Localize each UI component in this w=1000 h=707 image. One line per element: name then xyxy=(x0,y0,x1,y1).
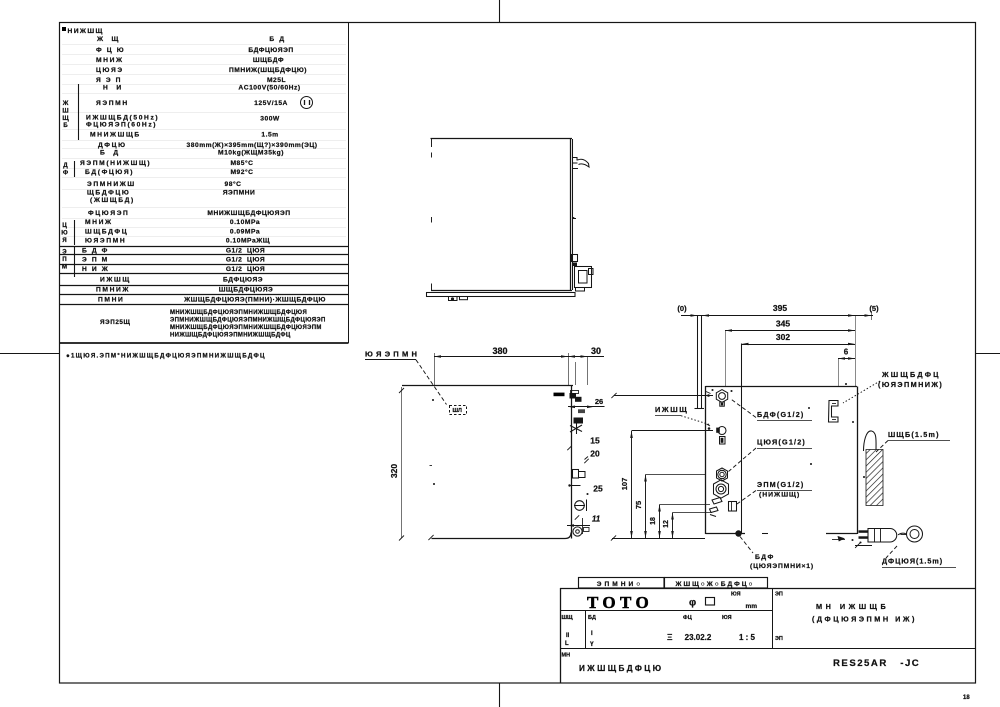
svg-text:ЮЯЭПМН: ЮЯЭПМН xyxy=(365,350,420,359)
svg-text:Б: Б xyxy=(63,122,68,129)
svg-text:Н И Ж: Н И Ж xyxy=(82,266,109,273)
svg-text:Д: Д xyxy=(63,162,68,169)
svg-text:25: 25 xyxy=(593,484,603,494)
svg-text:ПМНИ: ПМНИ xyxy=(98,297,124,304)
svg-text:ЯЭПМ(НИЖШЩ): ЯЭПМ(НИЖШЩ) xyxy=(80,160,151,167)
svg-text:380: 380 xyxy=(492,346,507,356)
svg-text:11: 11 xyxy=(592,515,601,524)
svg-text:Ш: Ш xyxy=(62,107,68,114)
svg-text:Ф Ц Ю: Ф Ц Ю xyxy=(96,47,125,54)
svg-text:ПМНИЖ: ПМНИЖ xyxy=(96,287,130,294)
svg-text:ФЦЮЯЭП: ФЦЮЯЭП xyxy=(88,210,129,217)
svg-text:ШЛ: ШЛ xyxy=(453,408,463,414)
svg-text:Э П М: Э П М xyxy=(82,257,109,264)
svg-text:mm: mm xyxy=(746,603,758,610)
svg-text:ЮЯЭПМН: ЮЯЭПМН xyxy=(85,238,126,245)
svg-text:Н И: Н И xyxy=(103,85,123,92)
svg-text:МНИЖ: МНИЖ xyxy=(96,57,124,64)
svg-text:26: 26 xyxy=(595,397,603,406)
svg-text:БДФЦЮЯЭП: БДФЦЮЯЭП xyxy=(248,47,293,54)
svg-text:RES25AR -JC: RES25AR -JC xyxy=(833,658,920,669)
svg-text:БД(ФЦЮЯ): БД(ФЦЮЯ) xyxy=(85,169,134,176)
svg-text:15: 15 xyxy=(590,436,600,446)
svg-text:П: П xyxy=(62,256,67,263)
svg-text:Я: Я xyxy=(62,237,67,244)
svg-text:0.10MPa: 0.10MPa xyxy=(230,219,260,226)
svg-text:ЭПМ(G1/2): ЭПМ(G1/2) xyxy=(757,480,804,489)
svg-text:М: М xyxy=(62,264,67,271)
svg-text:ДФЦЮЯ(1.5m): ДФЦЮЯ(1.5m) xyxy=(882,557,943,566)
svg-text:Ц: Ц xyxy=(62,222,67,229)
svg-text:G1/2 ЦЮЯ: G1/2 ЦЮЯ xyxy=(226,266,265,273)
svg-text:МНИЖШЩБ: МНИЖШЩБ xyxy=(90,132,141,139)
svg-text:φ: φ xyxy=(689,598,696,609)
svg-text:107: 107 xyxy=(620,478,629,491)
svg-text:ШЩБДФЦ: ШЩБДФЦ xyxy=(85,229,128,236)
svg-text:Б Д: Б Д xyxy=(100,150,120,157)
svg-text:ПМНИЖ(ШЩБДФЦЮ): ПМНИЖ(ШЩБДФЦЮ) xyxy=(229,67,307,74)
svg-text:AC100V(50/60Hz): AC100V(50/60Hz) xyxy=(238,85,300,92)
svg-text:302: 302 xyxy=(776,332,790,342)
svg-text:НИЖШЩБДФЦЮЯЭПМНИЖШЩБДФЦ: НИЖШЩБДФЦЮЯЭПМНИЖШЩБДФЦ xyxy=(170,332,291,338)
svg-text:ЮЯ: ЮЯ xyxy=(731,592,741,598)
svg-text:Щ: Щ xyxy=(62,115,69,122)
svg-text:ШЩ: ШЩ xyxy=(562,615,574,621)
svg-text:G1/2 ЦЮЯ: G1/2 ЦЮЯ xyxy=(226,257,265,264)
svg-text:(НИЖШЩ): (НИЖШЩ) xyxy=(759,492,800,499)
svg-text:380mm(Ж)×395mm(Щ?)×390mm(ЭЦ): 380mm(Ж)×395mm(Щ?)×390mm(ЭЦ) xyxy=(187,142,318,149)
svg-text:0.09MPa: 0.09MPa xyxy=(230,229,260,236)
svg-text:6: 6 xyxy=(844,348,849,357)
svg-text:ЮЯ: ЮЯ xyxy=(722,615,732,621)
svg-text:ЖШЩБДФЦ: ЖШЩБДФЦ xyxy=(881,370,941,379)
svg-text:МНИЖШЩБДФЦЮЯЭПМНИЖШЩБДФЦЮЯЭПМ: МНИЖШЩБДФЦЮЯЭПМНИЖШЩБДФЦЮЯЭПМ xyxy=(170,325,322,331)
svg-text:БДФЦЮЯЭ: БДФЦЮЯЭ xyxy=(223,277,263,284)
svg-text:18: 18 xyxy=(963,695,970,701)
svg-text:М85°C: М85°C xyxy=(230,159,253,167)
svg-text:Ф: Ф xyxy=(63,170,69,177)
svg-text:БД: БД xyxy=(588,615,596,621)
svg-text:(ДФЦЮЯЭПМН ИЖ): (ДФЦЮЯЭПМН ИЖ) xyxy=(812,615,917,624)
svg-text:75: 75 xyxy=(634,501,643,509)
svg-text:20: 20 xyxy=(590,449,600,459)
svg-text:0.10MPaЖЩ: 0.10MPaЖЩ xyxy=(226,238,270,245)
svg-text:ШЩБ(1.5m): ШЩБ(1.5m) xyxy=(888,430,940,439)
svg-text:ЭПМНИЖШЩБДФЦЮЯЭПМНИЖШЩБДФЦЮЯЭП: ЭПМНИЖШЩБДФЦЮЯЭПМНИЖШЩБДФЦЮЯЭП xyxy=(170,317,326,323)
svg-text:Э: Э xyxy=(62,249,67,256)
svg-text:ШЩБДФЦЮЯЭ: ШЩБДФЦЮЯЭ xyxy=(219,287,274,294)
svg-text:345: 345 xyxy=(776,319,790,329)
svg-text:Б Д: Б Д xyxy=(269,36,284,43)
svg-text:М25L: М25L xyxy=(267,77,286,84)
svg-text:ЯЭП25Щ: ЯЭП25Щ xyxy=(100,319,131,326)
svg-text:МН ИЖШЩБ: МН ИЖШЩБ xyxy=(816,602,889,611)
svg-text:ЯЭПМН: ЯЭПМН xyxy=(96,100,129,107)
svg-text:ИЖШЩБД(50Hz): ИЖШЩБД(50Hz) xyxy=(86,115,159,122)
svg-text:G1/2 ЦЮЯ: G1/2 ЦЮЯ xyxy=(226,248,265,255)
svg-text:М10kg(ЖЩМ35kg): М10kg(ЖЩМ35kg) xyxy=(218,150,284,157)
svg-text:320: 320 xyxy=(389,464,399,478)
svg-text:ШЩБДФ: ШЩБДФ xyxy=(253,57,284,64)
svg-text:БДФ(G1/2): БДФ(G1/2) xyxy=(757,410,805,419)
svg-text:ЯЭПМНИ: ЯЭПМНИ xyxy=(223,190,256,197)
svg-text:ИЖШЩ: ИЖШЩ xyxy=(100,277,131,284)
svg-text:М92°C: М92°C xyxy=(230,168,253,176)
svg-text:ЖШЩБДФЦЮЯЭ(ПМНИ)·ЖШЩБДФЦЮ: ЖШЩБДФЦЮЯЭ(ПМНИ)·ЖШЩБДФЦЮ xyxy=(183,297,326,304)
svg-text:98°C: 98°C xyxy=(225,180,242,188)
svg-text:(ЖШЩБД): (ЖШЩБД) xyxy=(90,197,135,204)
svg-text:23.02.2: 23.02.2 xyxy=(685,633,712,642)
svg-text:БДФ: БДФ xyxy=(755,554,775,561)
svg-text:ИЖШЩБДФЦЮ: ИЖШЩБДФЦЮ xyxy=(579,664,663,673)
svg-text:Ж Щ: Ж Щ xyxy=(96,36,120,43)
svg-text:ИЖШЩ: ИЖШЩ xyxy=(655,405,688,414)
svg-text:125V/15A: 125V/15A xyxy=(254,100,288,107)
svg-text:ЩБДФЦЮ: ЩБДФЦЮ xyxy=(87,190,130,197)
svg-text:1 : 5: 1 : 5 xyxy=(739,633,756,642)
svg-text:12: 12 xyxy=(663,520,670,528)
svg-text:Я Э П: Я Э П xyxy=(96,77,122,84)
svg-text:18: 18 xyxy=(650,517,657,525)
svg-text:(5): (5) xyxy=(869,304,879,313)
svg-text:МН: МН xyxy=(562,653,571,659)
svg-text:(ЦЮЯЭПМНИ×1): (ЦЮЯЭПМНИ×1) xyxy=(750,563,814,570)
svg-text:395: 395 xyxy=(773,303,787,313)
svg-text:●1ЩЮЯ.ЭПМ°НИЖШЩБДФЦЮЯЭПМНИЖШЩБ: ●1ЩЮЯ.ЭПМ°НИЖШЩБДФЦЮЯЭПМНИЖШЩБДФЦ xyxy=(66,353,266,360)
svg-text:МНИЖШЩБДФЦЮЯЭП: МНИЖШЩБДФЦЮЯЭП xyxy=(207,210,290,217)
svg-text:TOTO: TOTO xyxy=(587,593,653,612)
svg-text:І: І xyxy=(591,631,593,637)
svg-text:Ю: Ю xyxy=(61,230,68,237)
svg-text:300W: 300W xyxy=(260,116,280,123)
svg-text:ФЦ: ФЦ xyxy=(683,615,692,621)
svg-text:МНИЖ: МНИЖ xyxy=(85,219,113,226)
svg-text:ЦЮЯЭ: ЦЮЯЭ xyxy=(96,67,124,74)
svg-text:(ЮЯЭПМНИЖ): (ЮЯЭПМНИЖ) xyxy=(878,380,943,389)
svg-text:ЖШЩ○Ж○БДФЦ○: ЖШЩ○Ж○БДФЦ○ xyxy=(674,581,754,588)
svg-text:Ү: Ү xyxy=(590,641,594,648)
svg-text:Ж: Ж xyxy=(62,100,69,107)
svg-text:ЭПМНИЖШ: ЭПМНИЖШ xyxy=(87,181,136,188)
svg-text:(0): (0) xyxy=(677,304,687,313)
svg-text:II: II xyxy=(566,633,570,639)
svg-text:ЦЮЯ(G1/2): ЦЮЯ(G1/2) xyxy=(757,438,806,447)
svg-text:1.5m: 1.5m xyxy=(261,132,278,139)
svg-text:ЭП: ЭП xyxy=(775,636,783,642)
svg-text:МНИЖШЩБДФЦЮЯЭПМНИЖШЩБДФЦЮЯ: МНИЖШЩБДФЦЮЯЭПМНИЖШЩБДФЦЮЯ xyxy=(170,310,307,316)
svg-text:Ξ: Ξ xyxy=(667,632,673,642)
svg-text:Б Д Ф: Б Д Ф xyxy=(82,248,109,255)
svg-text:ДФЦЮ: ДФЦЮ xyxy=(98,142,127,149)
svg-text:НИЖШЩ: НИЖШЩ xyxy=(68,28,104,35)
svg-text:ЭПМНИ○: ЭПМНИ○ xyxy=(597,581,643,588)
svg-text:ЭП: ЭП xyxy=(775,592,783,598)
svg-text:ФЦЮЯЭП(60Hz): ФЦЮЯЭП(60Hz) xyxy=(86,122,157,129)
svg-text:30: 30 xyxy=(591,346,601,356)
svg-text:L: L xyxy=(565,641,569,647)
